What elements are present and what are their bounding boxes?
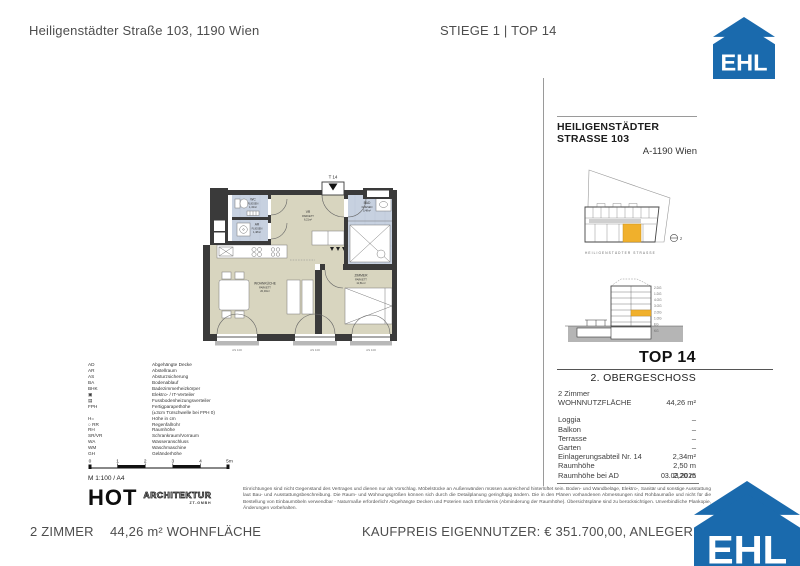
floor-label: 2.OG bbox=[654, 311, 662, 315]
ehl-logo-large: EHL bbox=[694, 481, 800, 566]
building-section: 2.DG 1.DG 4.OG 3.OG 2.OG 1.OG EG KG bbox=[563, 276, 693, 346]
room-floor: FLIESEN bbox=[252, 226, 263, 230]
architect-field: ARCHITEKTUR ZT-GMBH bbox=[143, 490, 211, 505]
floor-label: 1.DG bbox=[654, 292, 662, 296]
scale-tick: 4 bbox=[199, 459, 202, 465]
detail-label: Garten bbox=[558, 443, 581, 452]
detail-value: – bbox=[692, 415, 696, 424]
floor-label: EG bbox=[654, 323, 659, 327]
scale-ticks: 0 1 2 3 4 5m bbox=[89, 459, 233, 465]
room-label: ZIMMER bbox=[354, 274, 368, 278]
washing-machine bbox=[237, 223, 250, 236]
sofa bbox=[287, 280, 300, 314]
balcony bbox=[597, 204, 605, 208]
room-label: AR bbox=[255, 223, 260, 227]
entrance: T 14 bbox=[322, 175, 344, 196]
header-unit: STIEGE 1 | TOP 14 bbox=[440, 23, 557, 38]
toilet bbox=[235, 199, 248, 208]
room-floor: PARKETT bbox=[302, 214, 314, 218]
room-area: 11,51m² bbox=[356, 281, 365, 285]
area-value: 44,26 m² bbox=[666, 398, 696, 407]
sidebar-top-rule bbox=[557, 116, 697, 117]
scale-tick: 3 bbox=[171, 459, 174, 465]
detail-value: – bbox=[692, 434, 696, 443]
floor-label: 4.OG bbox=[654, 298, 662, 302]
bed bbox=[345, 288, 392, 324]
legend-abbr: GH bbox=[88, 451, 152, 457]
table-row: Raumhöhe2,50 m bbox=[558, 461, 696, 470]
floor-plan: T 14 WC FLIESEN 1,43m² AR FLIESEN 1,48m²… bbox=[195, 168, 410, 356]
balcony bbox=[629, 204, 637, 208]
table-row: Loggia– bbox=[558, 415, 696, 424]
detail-label: Balkon bbox=[558, 425, 581, 434]
annex bbox=[585, 320, 607, 326]
legend-desc: Geländerhöhe bbox=[152, 451, 268, 457]
header-address: Heiligenstädter Straße 103, 1190 Wien bbox=[29, 23, 259, 38]
detail-value: – bbox=[692, 443, 696, 452]
legend-row: GHGeländerhöhe bbox=[88, 451, 268, 457]
table-row: Terrasse– bbox=[558, 434, 696, 443]
niche bbox=[367, 191, 389, 198]
table-row: Balkon– bbox=[558, 425, 696, 434]
scale-tick: 1 bbox=[116, 459, 119, 465]
room-area: 1,48m² bbox=[253, 230, 261, 234]
window-label: AS 100 bbox=[310, 348, 320, 352]
architect-field-text: ARCHITEKTUR bbox=[143, 490, 211, 500]
room-label: WOHNKÜCHE bbox=[254, 282, 277, 286]
highlighted-floor bbox=[631, 310, 651, 316]
unit-info-table: 2 Zimmer WOHNNUTZFLÄCHE44,26 m² Loggia– … bbox=[558, 389, 696, 480]
table-row: Einlagerungsabteil Nr. 142,34m² bbox=[558, 452, 696, 461]
date-rule bbox=[557, 483, 699, 484]
corridor bbox=[589, 219, 641, 223]
floor-label: 3.OG bbox=[654, 304, 662, 308]
scale-tick: 0 bbox=[89, 459, 92, 465]
room-area: 6,21m² bbox=[304, 218, 312, 222]
room-floor: PARKETT bbox=[355, 277, 367, 281]
shaft bbox=[214, 233, 225, 244]
north-arrow-icon: z bbox=[670, 234, 683, 241]
scale-tick: 5m bbox=[226, 459, 233, 465]
room-label: VR bbox=[306, 210, 311, 214]
site-plan: z HEILIGENSTÄDTER STRASSE bbox=[575, 162, 690, 260]
area-label: WOHNNUTZFLÄCHE bbox=[558, 398, 631, 407]
shaft bbox=[214, 221, 225, 232]
project-title: HEILIGENSTÄDTER STRASSE 103 bbox=[557, 121, 697, 145]
plan-date: 03.03.2025 bbox=[557, 473, 696, 480]
ehl-logo-text: EHL bbox=[720, 49, 767, 75]
disclaimer-text: Einrichtungen sind nicht Gegenstand des … bbox=[243, 487, 711, 512]
sidebar-title-block: HEILIGENSTÄDTER STRASSE 103 A-1190 Wien bbox=[557, 121, 697, 157]
scale-tick: 2 bbox=[144, 459, 147, 465]
window-label: AS 100 bbox=[232, 348, 242, 352]
room-label: WC bbox=[250, 198, 256, 202]
street-label: HEILIGENSTÄDTER STRASSE bbox=[585, 251, 656, 255]
detail-label: Einlagerungsabteil Nr. 14 bbox=[558, 452, 642, 461]
roof-outline bbox=[611, 279, 651, 286]
windows bbox=[215, 334, 392, 346]
detail-label: Terrasse bbox=[558, 434, 587, 443]
room-area: 1,43m² bbox=[249, 205, 257, 209]
expose-page: Heiligenstädter Straße 103, 1190 Wien ST… bbox=[0, 0, 800, 566]
detail-value: 2,50 m bbox=[673, 461, 696, 470]
balcony bbox=[613, 204, 621, 208]
detail-label: Loggia bbox=[558, 415, 581, 424]
basement-tower bbox=[611, 327, 651, 339]
scale-bar: 0 1 2 3 4 5m bbox=[88, 458, 253, 473]
svg-text:z: z bbox=[680, 236, 683, 241]
ehl-logo-text: EHL bbox=[707, 528, 788, 566]
wardrobe bbox=[312, 231, 344, 245]
floor-label: 2.DG bbox=[654, 286, 662, 290]
project-subtitle: A-1190 Wien bbox=[557, 146, 697, 157]
architect-logo: HOT ARCHITEKTUR ZT-GMBH bbox=[88, 488, 211, 508]
footer-rooms: 2 ZIMMER bbox=[30, 524, 94, 539]
scale-note: M 1:100 / A4 bbox=[88, 475, 125, 482]
footer-area: 44,26 m² WOHNFLÄCHE bbox=[110, 524, 261, 539]
window-labels: AS 100 AS 100 AS 100 bbox=[232, 348, 376, 352]
divider-vertical bbox=[543, 78, 544, 486]
bath-sink bbox=[376, 198, 391, 211]
radiator bbox=[247, 211, 259, 216]
rooms-label: 2 Zimmer bbox=[558, 389, 590, 398]
unit-title: TOP 14 bbox=[557, 349, 696, 367]
footer-price: KAUFPREIS EIGENNUTZER: € 351.700,00, ANL… bbox=[362, 524, 696, 539]
ehl-logo: EHL bbox=[713, 17, 775, 79]
room-floor: FLIESEN bbox=[362, 205, 373, 209]
room-area: 5,48m² bbox=[363, 209, 371, 213]
architect-name: HOT bbox=[88, 488, 137, 508]
floor-label: 1.OG bbox=[654, 317, 662, 321]
room-floor: FLIESEN bbox=[248, 201, 259, 205]
window-label: AS 100 bbox=[366, 348, 376, 352]
entrance-label: T 14 bbox=[329, 175, 338, 180]
unit-rule bbox=[557, 369, 773, 370]
shower bbox=[350, 225, 390, 262]
architect-sub: ZT-GMBH bbox=[143, 501, 211, 505]
detail-value: – bbox=[692, 425, 696, 434]
unit-floor: 2. OBERGESCHOSS bbox=[557, 372, 696, 384]
highlighted-unit bbox=[623, 224, 641, 242]
detail-value: 2,34m² bbox=[673, 452, 696, 461]
room-floor: PARKETT bbox=[259, 285, 271, 289]
room-label: BAD bbox=[364, 201, 371, 205]
abbreviation-legend: ADAbgehängte Decke ARAbstellraum ASAbstu… bbox=[88, 362, 268, 457]
table-row: Garten– bbox=[558, 443, 696, 452]
detail-label: Raumhöhe bbox=[558, 461, 595, 470]
dining-table bbox=[219, 280, 249, 310]
room-area: 20,03m² bbox=[260, 289, 270, 293]
floor-label: KG bbox=[654, 329, 659, 333]
building-footprint bbox=[585, 207, 659, 242]
